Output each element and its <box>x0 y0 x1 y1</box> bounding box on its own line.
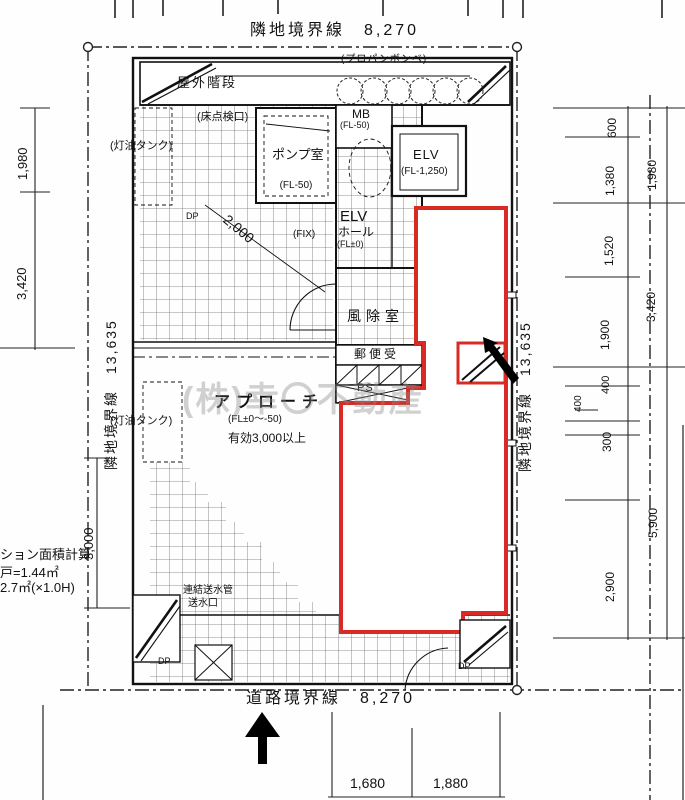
floor-hatch-label: (床点検口) <box>197 111 248 123</box>
top-boundary-label: 隣地境界線 8,270 <box>250 22 419 40</box>
dim-right-outer-3420: 3,420 <box>645 292 657 322</box>
elv-fl: (FL-1,250) <box>401 166 448 177</box>
dp-label-bottom-right: DP <box>458 662 471 672</box>
pump-room-fl: (FL-50) <box>268 180 324 191</box>
standpipe-label-1: 連結送水管 <box>183 585 233 596</box>
pump-room-label: ポンプ室 <box>272 148 318 162</box>
elv-hall-label-2: ホール <box>338 226 374 239</box>
dim-right-outer-5900: 5,900 <box>647 508 659 538</box>
dp-label-bottom-left: DP <box>158 657 171 667</box>
calc-note-1: ション面積計算 <box>0 548 91 562</box>
road-boundary-label: 道路境界線 8,270 <box>246 690 415 708</box>
dim-right-2900: 2,900 <box>604 572 616 602</box>
dim-right-600: 600 <box>606 118 618 138</box>
approach-note: 有効3,000以上 <box>228 432 306 445</box>
right-dimension-lines <box>553 106 685 640</box>
dim-bottom-1880: 1,880 <box>433 776 468 791</box>
oil-tank-top-label: (灯油タンク) <box>110 140 172 152</box>
calc-note-3: 2.7㎡(×1.0H) <box>0 581 75 595</box>
left-boundary-label: 隣地境界線 13,635 <box>104 319 118 470</box>
top-dimension-ticks <box>115 0 662 18</box>
fix-label: (FIX) <box>293 229 315 240</box>
elv-label: ELV <box>413 148 440 162</box>
windbreak-label: 風除室 <box>347 309 404 324</box>
dim-left-3420: 3,420 <box>15 267 28 300</box>
dim-right-400a: 400 <box>601 376 612 394</box>
dim-right-400b: 400 <box>574 395 584 412</box>
dim-right-1520: 1,520 <box>603 236 615 266</box>
oil-tank-bottom-label: (灯油タンク) <box>110 415 172 427</box>
right-boundary-label: 隣地境界線 13,635 <box>518 321 532 472</box>
dim-left-1980: 1,980 <box>16 147 29 180</box>
dim-right-300: 300 <box>601 432 613 452</box>
calc-note-2: 戸=1.44㎡ <box>0 566 59 580</box>
dim-bottom-1680: 1,680 <box>350 776 385 791</box>
dp-label-mid: DP <box>186 212 199 222</box>
propane-label: (プロパンボンベ) <box>341 54 427 65</box>
outdoor-stairs-label: 屋外階段 <box>177 76 237 90</box>
floor-plan-page: 隣地境界線 8,270 道路境界線 8,270 隣地境界線 13,635 隣地境… <box>0 0 685 800</box>
mb-fl: (FL-50) <box>340 121 370 131</box>
elv-hall-label-1: ELV <box>340 209 367 226</box>
dim-right-1380: 1,380 <box>604 166 616 196</box>
north-arrow <box>245 712 280 764</box>
elv-hall-fl: (FL±0) <box>337 240 363 250</box>
standpipe-label-2: 送水口 <box>188 598 218 609</box>
dim-right-1900: 1,900 <box>599 320 611 350</box>
dim-right-outer-1980: 1,980 <box>646 160 658 190</box>
company-watermark: (株)幸〇不動産 <box>182 372 425 421</box>
mailbox-label: 郵便受 <box>354 348 399 361</box>
